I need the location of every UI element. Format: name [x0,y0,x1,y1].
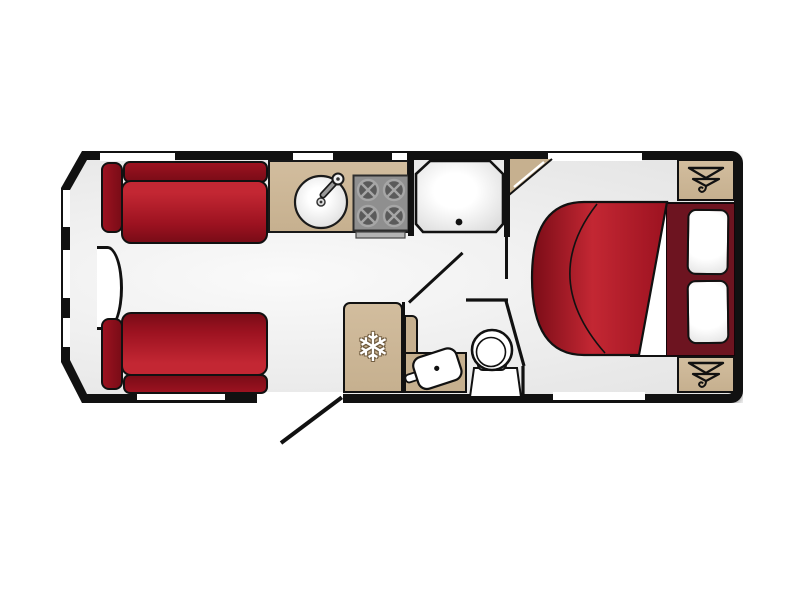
window-front-3 [63,318,70,347]
sofa-bottom-seat [121,312,268,376]
window-front-2 [63,250,70,298]
hob-icon [352,174,410,240]
shower-tray [414,158,506,236]
entry-door-swing [280,396,343,445]
sofa-bottom-backrest [123,374,268,394]
hanger-icon [686,360,726,390]
entry-door-opening [257,392,343,403]
window-top-bedroom [548,153,642,161]
wardrobe-bottom [677,356,735,393]
wall-kitchen-shower [408,158,414,236]
window-top-lounge [100,153,175,161]
snowflake-icon: ❄ [356,328,390,368]
bed-duvet [526,196,674,358]
fridge: ❄ [343,302,403,393]
wall-washroom-stub [505,237,508,279]
pillow-bottom [687,280,730,345]
window-bottom-bedroom [553,392,645,400]
sofa-top-seat [121,180,268,244]
wall-shower-right [504,157,510,237]
sofa-bottom-armrest [101,318,123,390]
pillow-top [687,209,730,276]
caravan-floorplan: ❄ [0,0,800,600]
window-front-1 [63,190,70,227]
hanger-icon [686,165,726,195]
wall-fridge-right [402,302,405,393]
kitchen-sink-icon [292,172,350,230]
corner-cupboard [509,159,553,197]
wardrobe-top [677,159,735,201]
sofa-top-armrest [101,162,123,233]
